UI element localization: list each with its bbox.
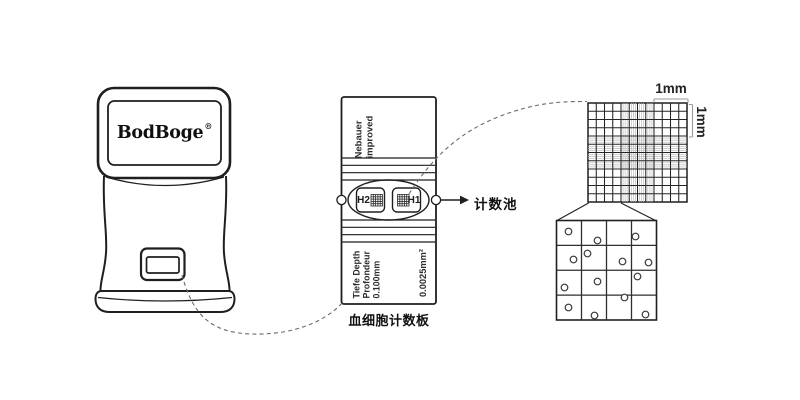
counting-pool-label: 计数池 (474, 193, 518, 213)
blood-cell-circle (570, 256, 577, 263)
depth-label: Tiefe Depth Profondeur 0.100mm (352, 247, 381, 299)
projection-line-left (557, 203, 589, 221)
grid-detail (557, 99, 693, 320)
well-h2-label: H2 (355, 194, 372, 207)
blood-cell-circle (565, 304, 572, 311)
brand-name: BodBoge (117, 123, 203, 143)
blood-cell-circle (634, 273, 641, 280)
diagram-canvas: BodBoge® Nebauer improved Tiefe Depth Pr… (0, 0, 800, 400)
blood-cell-circle (619, 258, 626, 265)
square-area-label: 0.0025mm² (418, 243, 432, 303)
diagram-artwork (0, 0, 800, 400)
brand-logo: BodBoge® (108, 101, 221, 165)
blood-cell-circle (632, 233, 639, 240)
height-bracket (689, 105, 693, 138)
blood-cell-circle (584, 250, 591, 257)
blood-cell-circle (642, 311, 649, 318)
blood-cell-circle (565, 228, 572, 235)
well-h1-label: H1 (406, 194, 423, 207)
slide-notch-left (337, 195, 346, 204)
icon-border (371, 195, 383, 207)
depth-line2: Profondeur (362, 247, 372, 299)
blood-cell-circle (645, 259, 652, 266)
blood-cell-circle (561, 284, 568, 291)
device-body-left-edge (100, 176, 106, 291)
depth-line3: 0.100mm (372, 247, 382, 299)
blood-cell-circle (594, 237, 601, 244)
width-bracket (654, 99, 688, 103)
pointer-arrow-head (460, 196, 469, 205)
slide-slot-opening (147, 257, 180, 273)
counting-grid-icon (371, 195, 383, 207)
device-body-right-edge (224, 176, 230, 291)
projection-line-right (621, 203, 656, 221)
chamber-type-line2: improved (365, 106, 376, 159)
chamber-type-label: Nebauer improved (355, 106, 379, 159)
depth-line1: Tiefe Depth (352, 247, 362, 299)
grid-width-label: 1mm (654, 81, 688, 96)
grid-height-label: 1mm (695, 105, 709, 139)
registered-mark: ® (204, 121, 212, 131)
blood-cell-circle (621, 294, 628, 301)
blood-cell-circle (591, 312, 598, 319)
slide-caption: 血细胞计数板 (337, 310, 441, 329)
slide-notch-right (431, 195, 440, 204)
blood-cell-circle (594, 278, 601, 285)
